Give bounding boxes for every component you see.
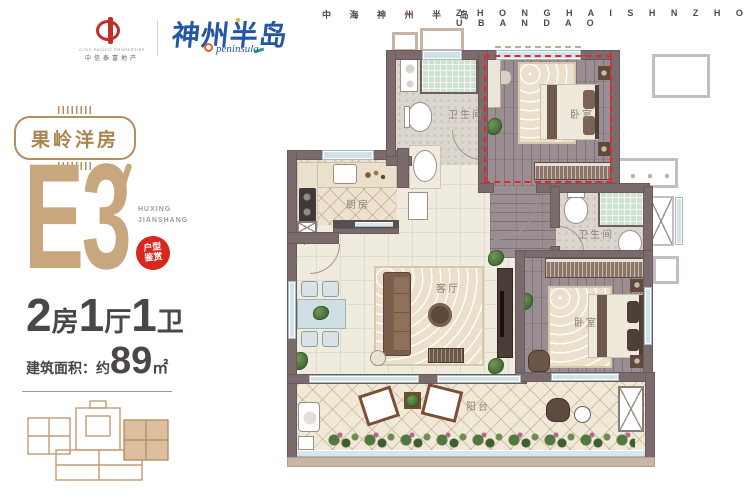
kitchen-label: 厨房 bbox=[334, 196, 382, 211]
brand-name-en: peninsula bbox=[216, 43, 259, 55]
bedroom2-balcony-window bbox=[552, 374, 618, 380]
key-plan-diagram bbox=[24, 398, 174, 486]
tv-screen bbox=[500, 291, 504, 337]
dining-window bbox=[289, 282, 295, 338]
unit-subtitle-line1: HUXING bbox=[138, 204, 188, 215]
wall-entry bbox=[287, 232, 339, 244]
bathroom1-shower bbox=[420, 56, 478, 94]
living-label: 客厅 bbox=[424, 280, 472, 295]
unit-subtitle-line2: JIANSHANG bbox=[138, 215, 188, 226]
dining-chair-3 bbox=[301, 331, 318, 347]
wall-bath2-left-upper bbox=[550, 186, 560, 228]
badge-ornament-top bbox=[58, 106, 94, 114]
bathroom1-washer bbox=[400, 58, 418, 92]
rooms-count: 2 bbox=[26, 288, 52, 342]
brand-swirl-icon bbox=[204, 43, 213, 52]
sofa-seat bbox=[394, 277, 409, 351]
appreciation-seal: 户型 鉴赏 bbox=[134, 234, 171, 271]
living-balcony-door-left bbox=[310, 376, 418, 382]
unit-subtitle-en: HUXING JIANSHANG bbox=[138, 204, 188, 226]
balcony-glass-rail bbox=[297, 450, 645, 457]
kitchen-condiments bbox=[363, 168, 389, 182]
kitchen-stove bbox=[299, 188, 316, 222]
kitchen-pass-window bbox=[355, 222, 393, 227]
baths-count: 1 bbox=[131, 288, 157, 342]
area-number: 89 bbox=[110, 342, 152, 380]
bedroom2-side-window bbox=[645, 288, 651, 344]
header: CITIC PACIFIC PROPERTIES 中信泰富地产 神州半岛 pen… bbox=[0, 0, 750, 80]
wall-balcony-bottom bbox=[287, 457, 655, 467]
site-title-cn: 中 海 神 州 半 岛 bbox=[322, 8, 477, 21]
citic-logo-icon bbox=[96, 17, 126, 45]
bed2-pillow-top bbox=[627, 301, 639, 323]
living-balcony-door-right bbox=[438, 376, 520, 382]
bathroom2-shower bbox=[598, 189, 645, 227]
halls-count: 1 bbox=[79, 288, 105, 342]
dining-chair-2 bbox=[322, 281, 339, 297]
wall-vanity-block bbox=[397, 148, 409, 188]
balcony-washbasin bbox=[298, 402, 320, 432]
eave-decoration bbox=[495, 40, 581, 48]
bathroom1-label: 卫生间 bbox=[440, 106, 492, 121]
bedroom2-armchair bbox=[528, 350, 550, 372]
ac-platform-large bbox=[420, 28, 464, 52]
balcony-storage-box bbox=[298, 436, 314, 450]
bathroom1-window bbox=[423, 51, 461, 59]
floorplan-marketing-page: CITIC PACIFIC PROPERTIES 中信泰富地产 神州半岛 pen… bbox=[0, 0, 750, 500]
bathroom1-toilet-tank bbox=[404, 106, 410, 128]
kitchen-window bbox=[323, 151, 373, 159]
balcony-label: 阳台 bbox=[454, 398, 502, 413]
neighbor-room-right bbox=[653, 256, 679, 284]
balcony-planter-hedge bbox=[325, 430, 635, 450]
living-sofa bbox=[383, 272, 411, 356]
site-title-en: Z H O N G H A I S H N Z H O U B A N D A … bbox=[456, 8, 750, 28]
halls-unit: 厅 bbox=[104, 300, 131, 339]
coffee-table bbox=[428, 303, 452, 327]
wall-bath1-left bbox=[386, 50, 396, 162]
company-name-cn: 中信泰富地产 bbox=[78, 53, 146, 62]
vanity-sink bbox=[413, 150, 437, 182]
sofa-side-table bbox=[370, 350, 386, 366]
unit-code: E3 bbox=[24, 158, 129, 275]
bathroom1-toilet bbox=[408, 102, 432, 132]
kitchen-sink bbox=[333, 164, 357, 184]
neighbor-unit-top bbox=[652, 54, 710, 98]
area-unit: ㎡ bbox=[152, 354, 168, 378]
baths-unit: 卫 bbox=[157, 300, 184, 339]
area-approx: 约 bbox=[96, 358, 110, 378]
wall-tv bbox=[515, 250, 525, 382]
bathroom2-toilet bbox=[564, 196, 588, 224]
wall-bedroom2-top bbox=[515, 250, 653, 258]
ac-platform-small bbox=[392, 32, 418, 52]
bed2-pillow-bottom bbox=[627, 329, 639, 351]
citic-bar-icon bbox=[108, 17, 113, 44]
fridge bbox=[408, 192, 428, 220]
balcony-chair-right bbox=[546, 398, 570, 422]
balcony-shaft bbox=[618, 386, 644, 432]
company-name-en: CITIC PACIFIC PROPERTIES bbox=[72, 47, 152, 52]
dining-chair-1 bbox=[301, 281, 318, 297]
wall-bedroom1-bottom-left bbox=[478, 183, 494, 193]
bedroom2-label: 卧室 bbox=[560, 314, 612, 329]
bathroom2-label: 卫生间 bbox=[570, 226, 622, 241]
dining-chair-4 bbox=[322, 331, 339, 347]
wall-balcony-right bbox=[645, 372, 655, 467]
tv-cabinet bbox=[497, 268, 513, 358]
living-ottoman bbox=[428, 348, 464, 363]
stairwell-window bbox=[676, 198, 682, 244]
panel-divider bbox=[22, 391, 172, 392]
bedroom1-label: 卧室 bbox=[556, 106, 608, 121]
bedroom2-wardrobe bbox=[545, 258, 645, 278]
area-line: 建筑面积： 约 89 ㎡ bbox=[26, 342, 168, 380]
wall-kitchen-pass bbox=[333, 228, 399, 234]
brand-dot-icon bbox=[236, 18, 240, 22]
rooms-unit: 房 bbox=[52, 300, 79, 339]
layout-summary: 2 房 1 厅 1 卫 bbox=[26, 288, 184, 342]
seal-line2: 鉴赏 bbox=[144, 252, 163, 264]
logo-divider bbox=[157, 20, 158, 56]
balcony-round-table bbox=[574, 406, 591, 423]
area-prefix: 建筑面积： bbox=[26, 358, 96, 378]
